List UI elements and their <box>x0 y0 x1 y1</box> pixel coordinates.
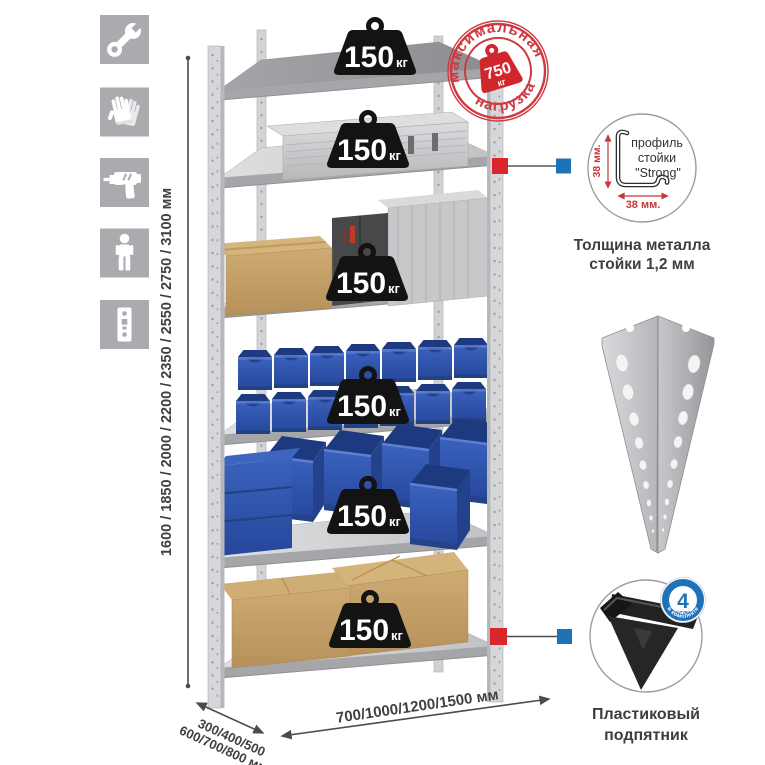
angle-profile-photo <box>602 316 714 553</box>
icon-tile-drill <box>100 158 149 207</box>
height-dimension-top-dot <box>186 56 191 61</box>
plastic-foot-detail: 4 штуки в комплекте Пластиковый подпятни… <box>590 578 706 745</box>
callout-top <box>492 158 571 174</box>
height-dimension: 1600 / 1850 / 2000 / 2200 / 2350 / 2550 … <box>159 56 190 689</box>
callout-marker-blue-bottom <box>557 629 572 644</box>
profile-dim-horizontal-label: 38 мм. <box>626 199 661 211</box>
callout-bottom <box>490 628 572 645</box>
height-dimension-label: 1600 / 1850 / 2000 / 2200 / 2350 / 2550 … <box>159 188 175 556</box>
icon-tile-post <box>100 300 149 349</box>
depth-dimension: 300/400/500 600/700/800 мм <box>177 703 276 765</box>
foot-caption-line2: подпятник <box>604 727 689 744</box>
cardboard-box-shelf3 <box>214 236 332 316</box>
cardboard-box-left <box>220 572 350 668</box>
rack-post-back-left <box>257 30 266 666</box>
callout-marker-blue-top <box>556 159 571 174</box>
width-dimension-label: 700/1000/1200/1500 мм <box>335 686 500 726</box>
shelf-load-badge <box>334 20 416 76</box>
width-dimension: 700/1000/1200/1500 мм <box>282 686 549 736</box>
height-dimension-bottom-dot <box>186 684 191 689</box>
infographic: 150 кг <box>0 0 765 765</box>
profile-label-line3: "Strong" <box>635 166 681 180</box>
thickness-caption-line1: Толщина металла <box>574 237 711 254</box>
assembly-icons <box>100 15 149 349</box>
rack-post-front-left <box>208 46 225 708</box>
post-profile-detail: 38 мм. 38 мм. профиль стойки "Strong" То… <box>574 114 711 273</box>
profile-label-line2: стойки <box>638 151 676 165</box>
icon-tile-gloves <box>100 88 149 137</box>
callout-marker-red-bottom <box>490 628 507 645</box>
foot-caption-line1: Пластиковый <box>592 706 700 723</box>
callout-marker-red-top <box>492 158 508 174</box>
thickness-caption-line2: стойки 1,2 мм <box>589 256 694 273</box>
profile-dim-vertical-label: 38 мм. <box>591 144 603 177</box>
large-bin-box <box>218 448 300 556</box>
count-badge: 4 штуки в комплекте <box>661 578 706 623</box>
perforated-post-icon <box>118 308 132 342</box>
profile-label-line1: профиль <box>631 136 683 150</box>
shelving-infographic: 150 кг <box>0 0 765 765</box>
icon-tile-person <box>100 229 149 278</box>
icon-tile-wrench <box>100 15 149 64</box>
rack-post-front-right <box>487 54 503 702</box>
